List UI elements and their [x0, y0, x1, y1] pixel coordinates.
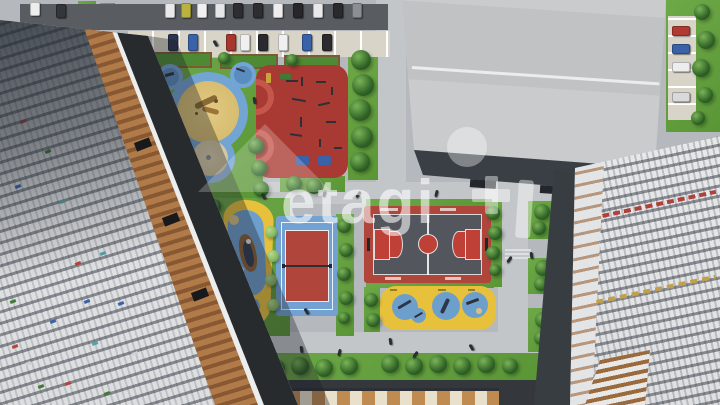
tree — [366, 313, 380, 327]
car — [30, 2, 40, 16]
car — [313, 3, 323, 18]
car — [352, 3, 362, 18]
tree — [429, 355, 447, 373]
car — [293, 3, 303, 18]
tree — [350, 152, 370, 172]
car — [273, 3, 283, 18]
net-post — [282, 264, 285, 268]
tree — [218, 52, 230, 64]
fitness-equipment — [301, 77, 303, 86]
fitness-equipment — [290, 133, 302, 137]
tree — [315, 359, 333, 377]
fitness-equipment — [318, 102, 330, 106]
tree — [364, 293, 378, 307]
car — [258, 34, 268, 51]
tree — [697, 87, 713, 103]
tree — [338, 312, 350, 324]
sand-patch — [476, 308, 482, 314]
tree — [534, 277, 548, 291]
tree — [534, 204, 550, 220]
car — [322, 34, 332, 51]
tree — [265, 274, 277, 286]
tree — [265, 226, 277, 238]
tree — [692, 59, 710, 77]
tree — [486, 206, 500, 220]
tree — [286, 176, 302, 192]
car — [333, 3, 343, 18]
tree — [337, 267, 351, 281]
tree — [532, 221, 546, 235]
car — [165, 3, 175, 18]
tree — [306, 178, 322, 194]
center-circle — [418, 234, 438, 254]
fitness-equipment — [292, 98, 306, 102]
net-line — [285, 265, 329, 267]
car — [302, 34, 312, 51]
car — [253, 3, 263, 18]
volleyball-court — [276, 216, 338, 316]
car — [278, 34, 288, 51]
ad-board — [445, 277, 461, 280]
aerial-courtyard-render: etagi — [0, 0, 720, 405]
play-item — [206, 155, 211, 160]
car — [226, 34, 236, 51]
fitness-arc — [256, 79, 274, 115]
car — [215, 3, 225, 18]
tree — [535, 312, 551, 328]
fitness-item — [266, 73, 271, 83]
car — [672, 26, 690, 36]
tree — [488, 226, 502, 240]
pedestrian — [530, 252, 534, 259]
low-building-edge — [287, 388, 499, 391]
sign-dot — [438, 289, 446, 291]
ship-mast — [246, 239, 251, 244]
gym-mat — [296, 156, 309, 165]
play-item — [214, 99, 218, 103]
car — [672, 44, 690, 54]
fitness-equipment — [331, 87, 333, 95]
tree — [534, 331, 548, 345]
tree — [251, 160, 267, 176]
fitness-equipment — [286, 80, 298, 82]
tree — [339, 243, 353, 257]
tree — [352, 74, 374, 96]
tree — [489, 264, 501, 276]
fitness-equipment — [316, 81, 326, 83]
fitness-equipment — [300, 117, 302, 127]
tree — [286, 54, 298, 66]
key-left — [374, 229, 390, 260]
key-left-arc — [390, 231, 403, 258]
tree — [339, 291, 353, 305]
tree — [453, 357, 471, 375]
tree — [694, 4, 710, 20]
tree — [697, 31, 715, 49]
school-entrance — [470, 179, 496, 189]
hoop — [367, 238, 370, 251]
low-building-roof — [287, 391, 499, 405]
right-tower-red-row — [602, 190, 716, 218]
car — [240, 34, 250, 51]
ad-board — [440, 208, 456, 211]
net-post — [329, 264, 332, 268]
toddler-playground — [380, 286, 496, 330]
tree — [405, 357, 423, 375]
tree — [337, 219, 351, 233]
ad-board — [380, 208, 398, 211]
tree — [349, 99, 371, 121]
tree — [691, 111, 705, 125]
car — [672, 92, 690, 102]
tree — [340, 357, 358, 375]
sign-dot — [468, 289, 475, 291]
car — [168, 34, 178, 51]
fitness-equipment — [326, 121, 336, 123]
fitness-equipment — [334, 147, 342, 149]
tree — [351, 126, 373, 148]
key-right-arc — [452, 231, 465, 258]
car — [672, 62, 690, 72]
tree — [535, 260, 551, 276]
key-right — [465, 229, 481, 260]
tree — [248, 138, 264, 154]
basketball-court — [364, 206, 491, 283]
tree — [267, 299, 279, 311]
fitness-equipment — [319, 139, 321, 147]
car — [197, 3, 207, 18]
right-tower-yellow-row — [596, 275, 716, 304]
tree — [477, 355, 495, 373]
tree — [291, 357, 309, 375]
car — [56, 4, 66, 18]
fitness-area — [256, 65, 348, 178]
tree — [381, 355, 399, 373]
car — [233, 3, 243, 18]
sand-patch — [229, 215, 239, 225]
play-item — [195, 112, 198, 115]
ad-board — [385, 277, 401, 280]
gym-mat — [318, 156, 331, 165]
car — [181, 3, 191, 18]
tree — [502, 358, 518, 374]
tree — [351, 50, 371, 70]
sign-dot — [390, 289, 397, 291]
tree — [486, 246, 500, 260]
car — [188, 34, 198, 51]
bench — [280, 74, 291, 79]
tree — [267, 250, 279, 262]
